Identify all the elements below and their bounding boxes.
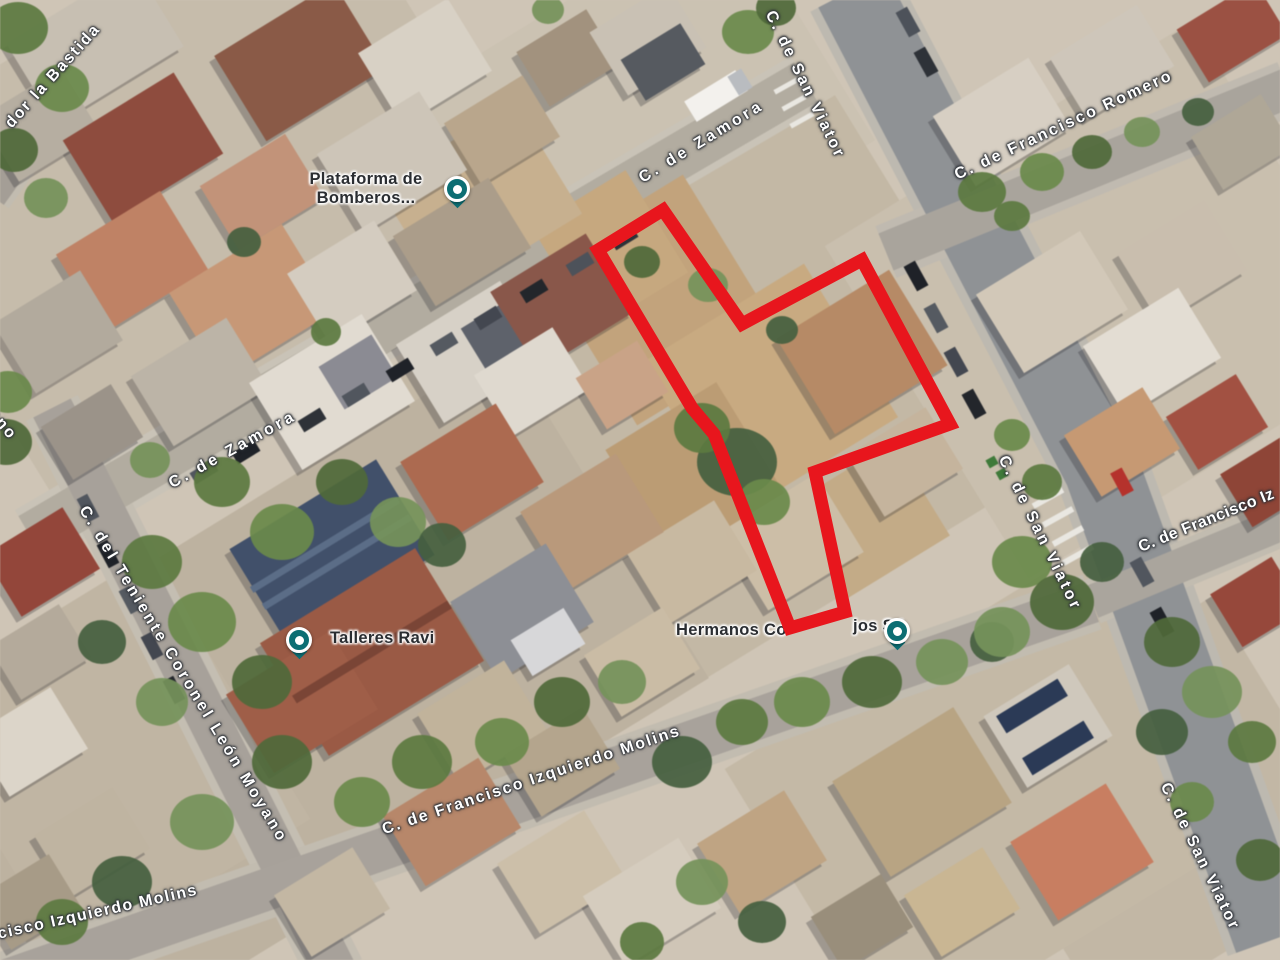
poi-label-line1: Plataforma de (291, 170, 441, 189)
tree (168, 592, 236, 652)
tree (1072, 135, 1112, 169)
tree (916, 639, 968, 685)
tree (1182, 666, 1242, 718)
tree (738, 901, 786, 943)
tree (534, 677, 590, 727)
tree (316, 459, 368, 505)
tree (994, 419, 1030, 451)
tree (252, 735, 312, 789)
tree (674, 403, 730, 453)
tree (78, 620, 126, 664)
poi-label-line2: Bomberos... (291, 189, 441, 208)
tree (392, 735, 452, 789)
tree (334, 777, 390, 827)
map-canvas[interactable]: dor la Bastida C. de Zamora C. de San Vi… (0, 0, 1280, 960)
tree (766, 316, 798, 344)
tree (250, 504, 314, 560)
tree (311, 318, 341, 346)
tree (598, 660, 646, 704)
tree (1182, 98, 1214, 126)
poi-label-hermanos-left-fragment[interactable]: Hermanos Co (676, 621, 787, 640)
tree (418, 523, 466, 567)
tree (716, 699, 768, 745)
poi-pin-icon-hermanos[interactable] (884, 618, 910, 644)
tree (994, 201, 1030, 231)
poi-pin-icon-plataforma[interactable] (444, 176, 470, 202)
tree (475, 718, 529, 766)
tree (1080, 542, 1124, 582)
tree (370, 497, 426, 547)
tree (774, 677, 830, 727)
tree (974, 607, 1030, 657)
tree (676, 859, 728, 905)
poi-label-talleres-ravi[interactable]: Talleres Ravi (330, 629, 435, 648)
poi-pin-icon-talleres[interactable] (286, 627, 312, 653)
pin-dot (893, 627, 902, 636)
tree (24, 178, 68, 218)
tree (227, 227, 261, 257)
pin-dot (453, 185, 462, 194)
pin-dot (295, 636, 304, 645)
tree (1136, 709, 1188, 755)
tree (232, 655, 292, 709)
tree (738, 479, 790, 525)
tree (1144, 617, 1200, 667)
tree (688, 268, 728, 302)
tree (624, 246, 660, 278)
tree (1020, 153, 1064, 191)
poi-label-plataforma-de-bomberos[interactable]: Plataforma de Bomberos... (291, 170, 441, 208)
tree (1124, 117, 1160, 147)
tree (842, 656, 902, 708)
tree (1228, 721, 1276, 763)
tree (170, 794, 234, 850)
tree (130, 442, 170, 478)
